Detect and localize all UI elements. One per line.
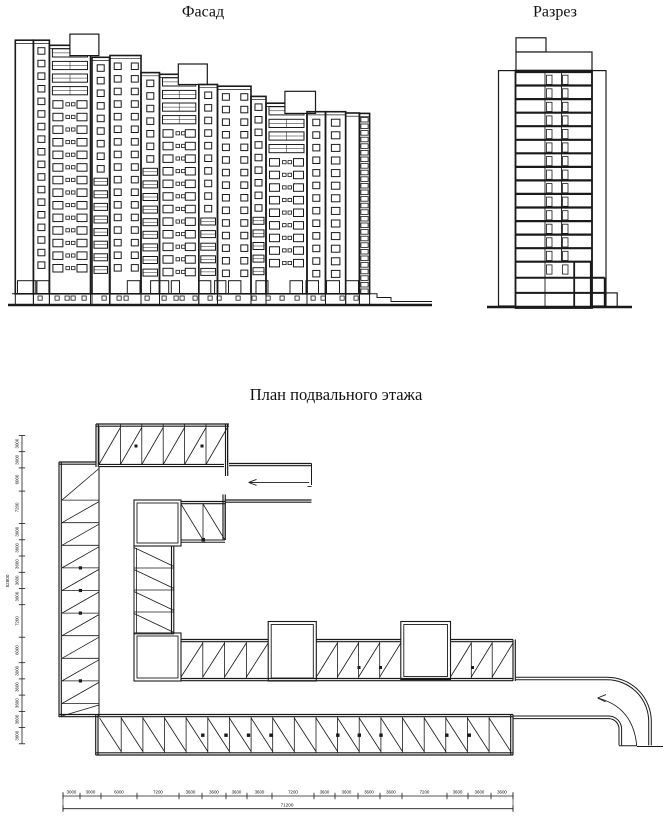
svg-text:3600: 3600 bbox=[497, 790, 507, 795]
svg-text:3000: 3000 bbox=[15, 438, 20, 448]
svg-text:3600: 3600 bbox=[15, 559, 20, 569]
svg-text:6000: 6000 bbox=[15, 474, 20, 484]
svg-text:52800: 52800 bbox=[5, 574, 10, 587]
svg-text:3600: 3600 bbox=[15, 575, 20, 585]
svg-text:3600: 3600 bbox=[386, 790, 396, 795]
svg-text:3600: 3600 bbox=[15, 698, 20, 708]
svg-text:3600: 3600 bbox=[232, 790, 242, 795]
svg-text:3600: 3600 bbox=[15, 682, 20, 692]
svg-text:Фасад: Фасад bbox=[182, 4, 224, 21]
svg-text:3600: 3600 bbox=[255, 790, 265, 795]
svg-text:6000: 6000 bbox=[15, 645, 20, 655]
svg-text:3600: 3600 bbox=[15, 714, 20, 724]
svg-text:3600: 3600 bbox=[475, 790, 485, 795]
svg-text:3600: 3600 bbox=[15, 526, 20, 536]
svg-text:7200: 7200 bbox=[420, 790, 430, 795]
svg-text:3600: 3600 bbox=[186, 790, 196, 795]
svg-text:3600: 3600 bbox=[342, 790, 352, 795]
svg-text:3600: 3600 bbox=[15, 591, 20, 601]
svg-text:6000: 6000 bbox=[114, 790, 124, 795]
svg-text:3000: 3000 bbox=[67, 790, 77, 795]
svg-text:Разрез: Разрез bbox=[533, 4, 577, 21]
svg-text:3000: 3000 bbox=[15, 454, 20, 464]
svg-text:3600: 3600 bbox=[15, 542, 20, 552]
svg-text:3600: 3600 bbox=[15, 730, 20, 740]
svg-text:7200: 7200 bbox=[288, 790, 298, 795]
svg-text:План подвального этажа: План подвального этажа bbox=[250, 385, 423, 404]
svg-text:7200: 7200 bbox=[153, 790, 163, 795]
svg-text:3000: 3000 bbox=[86, 790, 96, 795]
svg-text:3600: 3600 bbox=[209, 790, 219, 795]
svg-text:7200: 7200 bbox=[15, 616, 20, 626]
svg-text:71200: 71200 bbox=[281, 803, 294, 808]
svg-text:7200: 7200 bbox=[15, 502, 20, 512]
svg-text:3000: 3000 bbox=[15, 665, 20, 675]
svg-text:3600: 3600 bbox=[320, 790, 330, 795]
svg-text:3600: 3600 bbox=[453, 790, 463, 795]
svg-text:3600: 3600 bbox=[364, 790, 374, 795]
